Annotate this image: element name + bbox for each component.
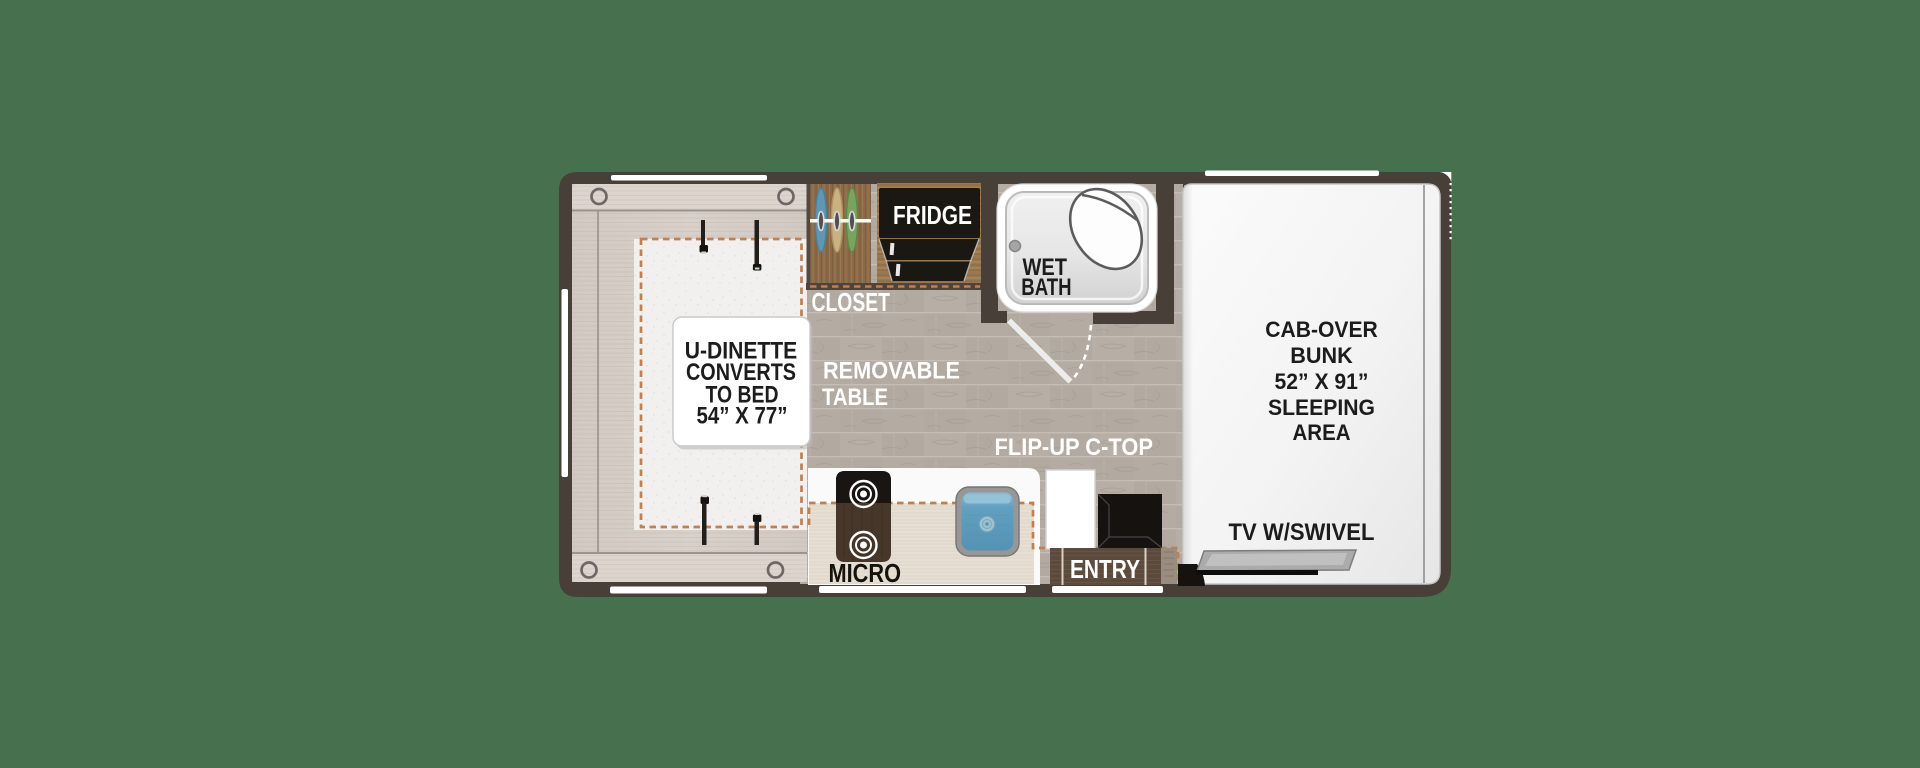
svg-text:54” X 77”: 54” X 77”: [697, 403, 788, 430]
svg-text:REMOVABLE: REMOVABLE: [823, 358, 960, 385]
svg-text:FRIDGE: FRIDGE: [893, 200, 972, 230]
svg-text:TV W/SWIVEL: TV W/SWIVEL: [1229, 519, 1375, 546]
svg-text:SLEEPING: SLEEPING: [1268, 395, 1375, 420]
svg-text:CLOSET: CLOSET: [812, 289, 891, 317]
svg-text:AREA: AREA: [1293, 420, 1351, 445]
svg-text:MICRO: MICRO: [829, 560, 902, 588]
svg-text:BUNK: BUNK: [1290, 343, 1353, 368]
svg-text:52” X 91”: 52” X 91”: [1275, 369, 1369, 394]
svg-text:TABLE: TABLE: [822, 384, 888, 411]
svg-text:CAB-OVER: CAB-OVER: [1265, 317, 1378, 342]
svg-text:BATH: BATH: [1021, 274, 1071, 301]
svg-text:ENTRY: ENTRY: [1070, 554, 1140, 584]
svg-text:FLIP-UP C-TOP: FLIP-UP C-TOP: [995, 434, 1154, 461]
